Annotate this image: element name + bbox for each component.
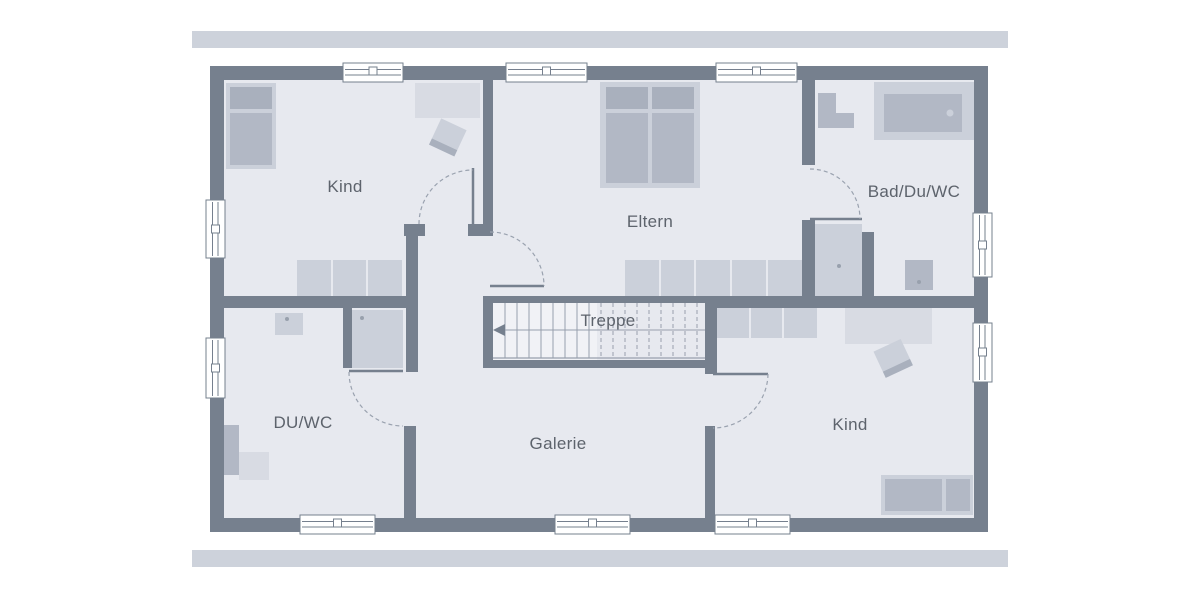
window-bottom-kind: [715, 515, 790, 534]
shower-tray: [352, 310, 403, 368]
window-top-eltern-right: [716, 63, 797, 82]
wall-eltern-bad-upper: [802, 80, 815, 165]
wall-bad-shower-right: [862, 232, 874, 296]
wall-stair-bottom: [493, 360, 717, 368]
vanity-basin: [836, 93, 854, 113]
wall-vestibule-left: [406, 236, 418, 372]
sink-mark: [285, 317, 289, 321]
window-left-kind: [206, 200, 225, 258]
wardrobe: [625, 260, 802, 296]
wardrobe: [297, 260, 402, 296]
top-eave-band: [192, 31, 1008, 48]
window-right-bad: [973, 213, 992, 277]
floor-plan-page: Kind Eltern Bad/Du/WC Treppe DU/WC Galer…: [0, 0, 1200, 600]
room-label-du-wc: DU/WC: [273, 413, 332, 432]
shower-tray: [815, 224, 862, 296]
bed-mattress: [885, 479, 942, 511]
wall-galerie-kind-lower: [705, 426, 715, 518]
window-top-eltern-left: [506, 63, 587, 82]
wall-stair-right: [705, 303, 717, 374]
wardrobe: [717, 308, 817, 338]
floor-plan-drawing: Kind Eltern Bad/Du/WC Treppe DU/WC Galer…: [0, 0, 1200, 600]
window-bottom-duwc: [300, 515, 375, 534]
wall-kind-door-stub-left: [404, 224, 425, 236]
wall-mid-right: [717, 296, 974, 308]
window-right-kind: [973, 323, 992, 382]
room-label-kind-bottom-right: Kind: [832, 415, 867, 434]
wall-mid-left: [224, 296, 406, 308]
bed-mattress: [230, 113, 272, 165]
window-bottom-galerie: [555, 515, 630, 534]
bed-pillow: [230, 87, 272, 109]
room-label-eltern: Eltern: [627, 212, 673, 231]
window-left-duwc: [206, 338, 225, 398]
desk: [415, 83, 480, 118]
shower-drain: [837, 264, 841, 268]
wall-kind-eltern: [483, 80, 493, 236]
wc-bowl: [239, 452, 269, 480]
room-label-treppe: Treppe: [580, 311, 635, 330]
bottom-eave-band: [192, 550, 1008, 567]
room-label-galerie: Galerie: [530, 434, 587, 453]
sink: [275, 313, 303, 335]
bed-pillow: [652, 87, 694, 109]
desk: [845, 308, 932, 344]
bed-pillow: [606, 87, 648, 109]
wc-toilet: [224, 425, 239, 475]
wall-stair-left: [483, 303, 493, 368]
bed-pillow: [946, 479, 970, 511]
wc-mark: [917, 280, 921, 284]
wall-duwc-galerie-lower: [404, 426, 416, 518]
wc-toilet: [905, 260, 933, 290]
bed-mattress: [606, 113, 648, 183]
bathtub-drain: [947, 110, 954, 117]
room-label-kind-top-left: Kind: [327, 177, 362, 196]
bed-mattress: [652, 113, 694, 183]
wall-duwc-shower-left: [343, 308, 352, 368]
shower-drain: [360, 316, 364, 320]
wall-stair-top: [483, 296, 717, 303]
wall-eltern-bad-lower: [802, 220, 815, 296]
window-top-kind: [343, 63, 403, 82]
wall-kind-door-stub-right: [468, 224, 483, 236]
room-label-bad-du-wc: Bad/Du/WC: [868, 182, 960, 201]
